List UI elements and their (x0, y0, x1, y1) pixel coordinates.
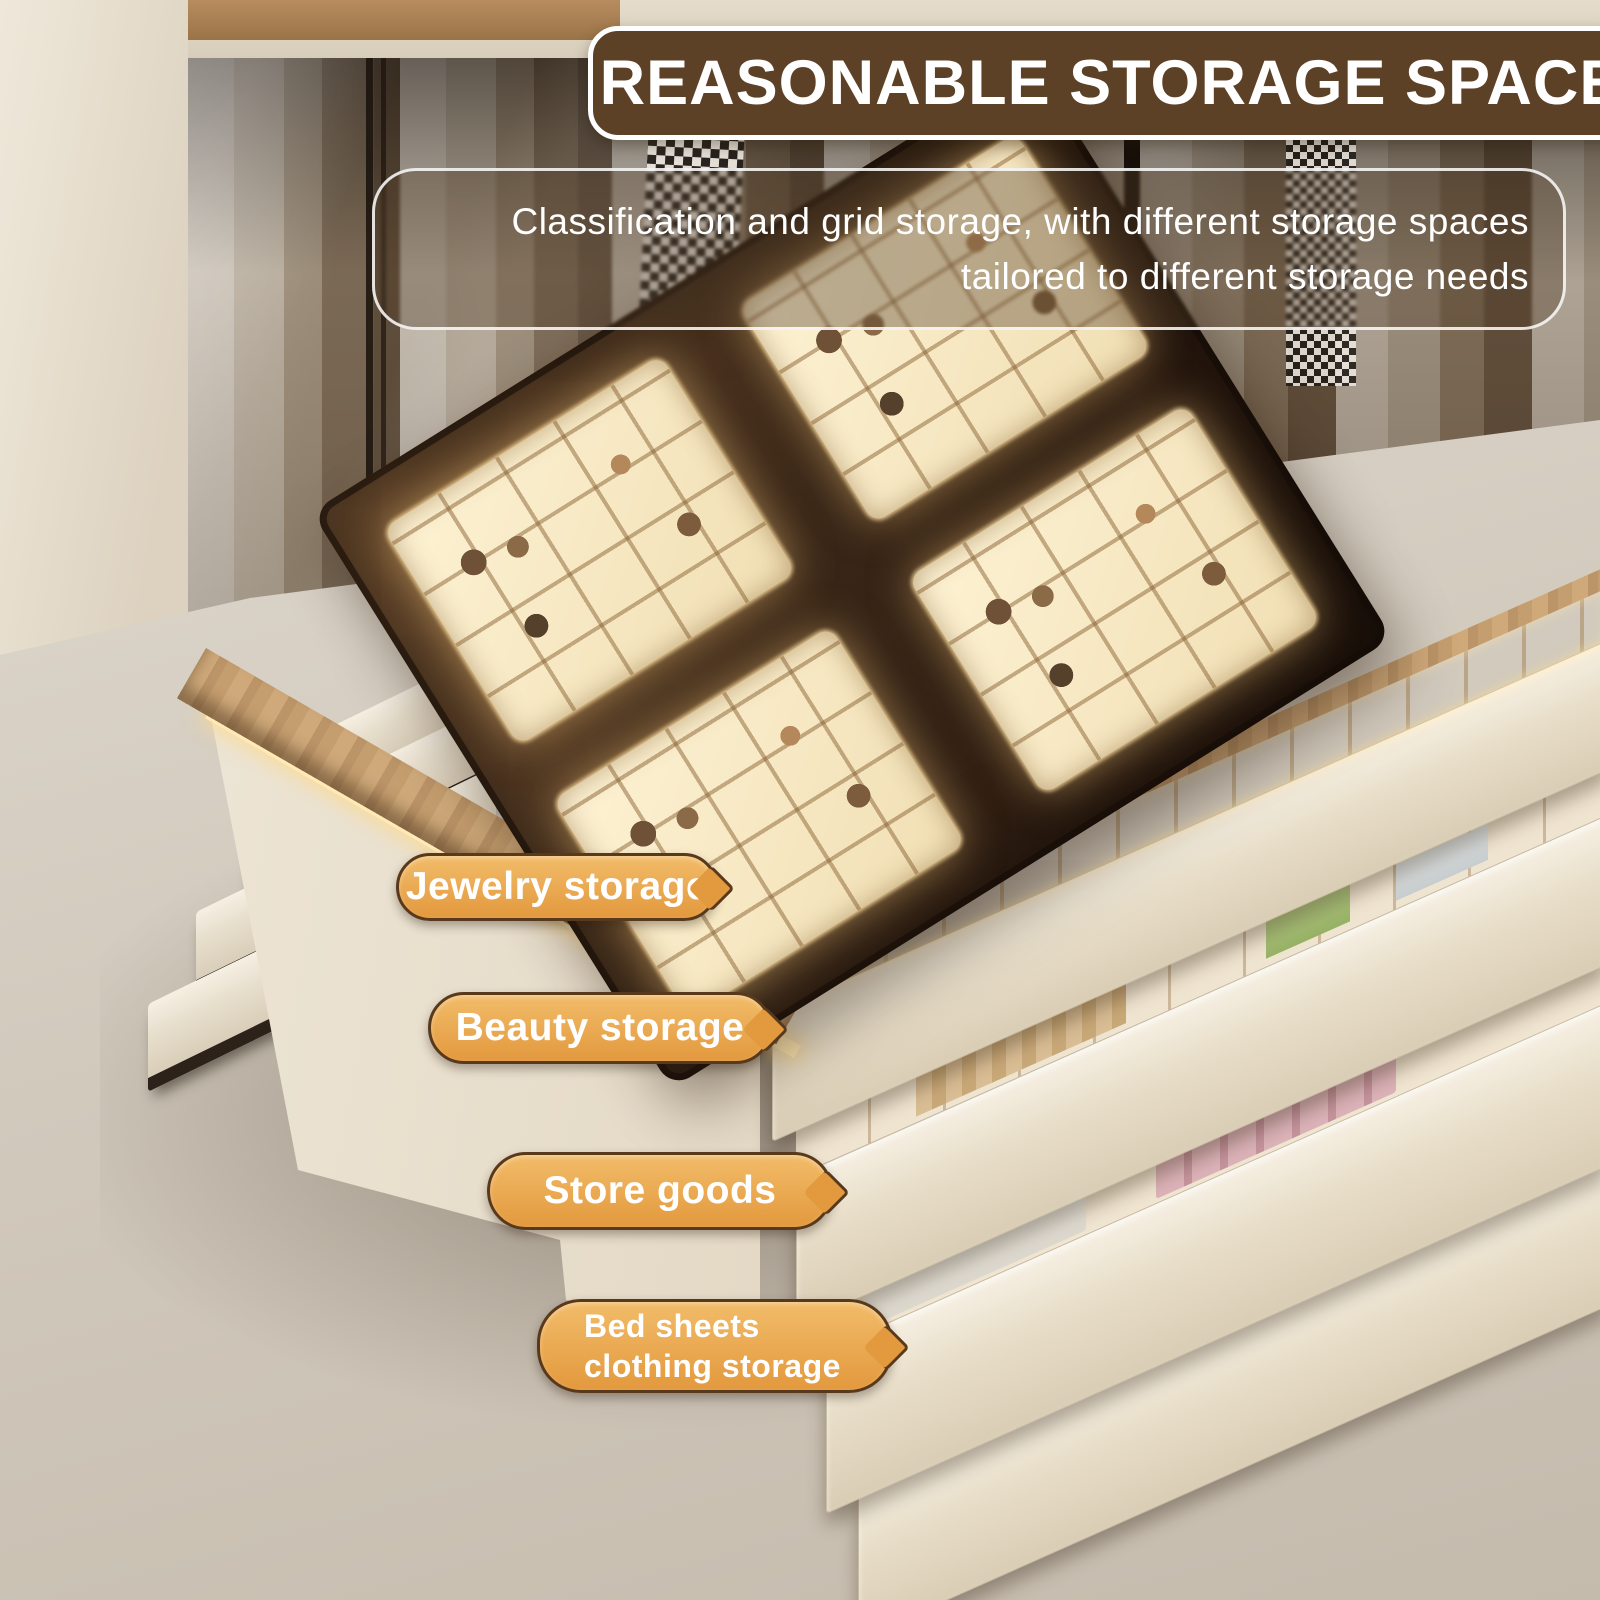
title-banner: REASONABLE STORAGE SPACE (588, 26, 1600, 140)
callout-bed-sheets-clothing-storage: Bed sheets clothing storage (537, 1299, 893, 1393)
side-wall (0, 0, 188, 690)
wood-ceiling-strip (150, 0, 620, 40)
callout-label: Jewelry storage (406, 865, 708, 910)
callout-label: Store goods (543, 1169, 776, 1214)
callout-store-goods: Store goods (487, 1152, 833, 1230)
product-marketing-image: REASONABLE STORAGE SPACE Classification … (0, 0, 1600, 1600)
description-line-1: Classification and grid storage, with di… (511, 194, 1529, 250)
callout-beauty-storage: Beauty storage (428, 992, 772, 1064)
description-box: Classification and grid storage, with di… (372, 168, 1566, 330)
callout-label: Bed sheets (584, 1306, 760, 1346)
callout-label: Beauty storage (456, 1006, 745, 1051)
description-line-2: tailored to different storage needs (961, 249, 1529, 305)
callout-jewelry-storage: Jewelry storage (396, 853, 718, 921)
callout-label: clothing storage (584, 1346, 841, 1386)
title-text: REASONABLE STORAGE SPACE (600, 52, 1600, 115)
